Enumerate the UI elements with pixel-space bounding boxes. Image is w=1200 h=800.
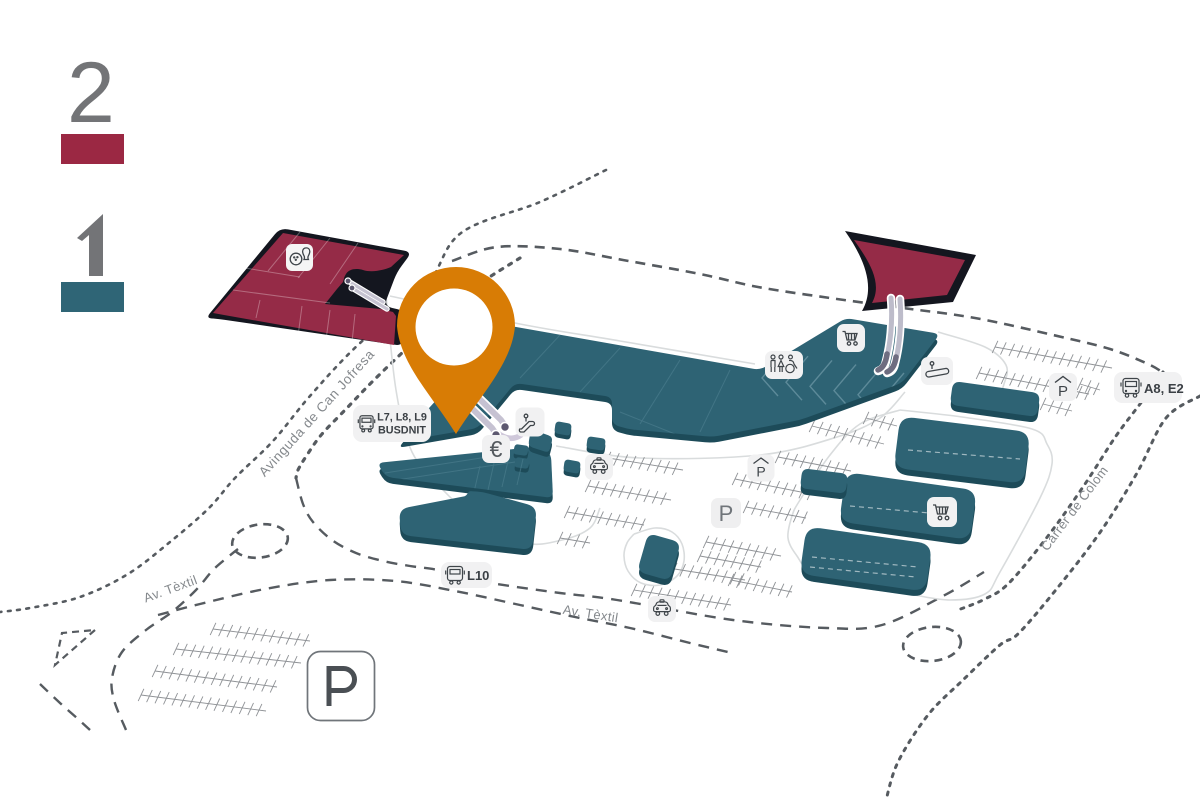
svg-text:P: P xyxy=(1058,383,1068,400)
svg-text:L10: L10 xyxy=(467,568,489,583)
svg-text:2: 2 xyxy=(67,45,115,141)
svg-text:€: € xyxy=(490,436,503,462)
svg-text:P: P xyxy=(756,464,765,480)
svg-text:BUSDNIT: BUSDNIT xyxy=(378,425,426,437)
svg-text:P: P xyxy=(719,501,734,526)
svg-text:A8, E2: A8, E2 xyxy=(1144,381,1184,396)
svg-text:L7, L8, L9: L7, L8, L9 xyxy=(377,412,427,424)
